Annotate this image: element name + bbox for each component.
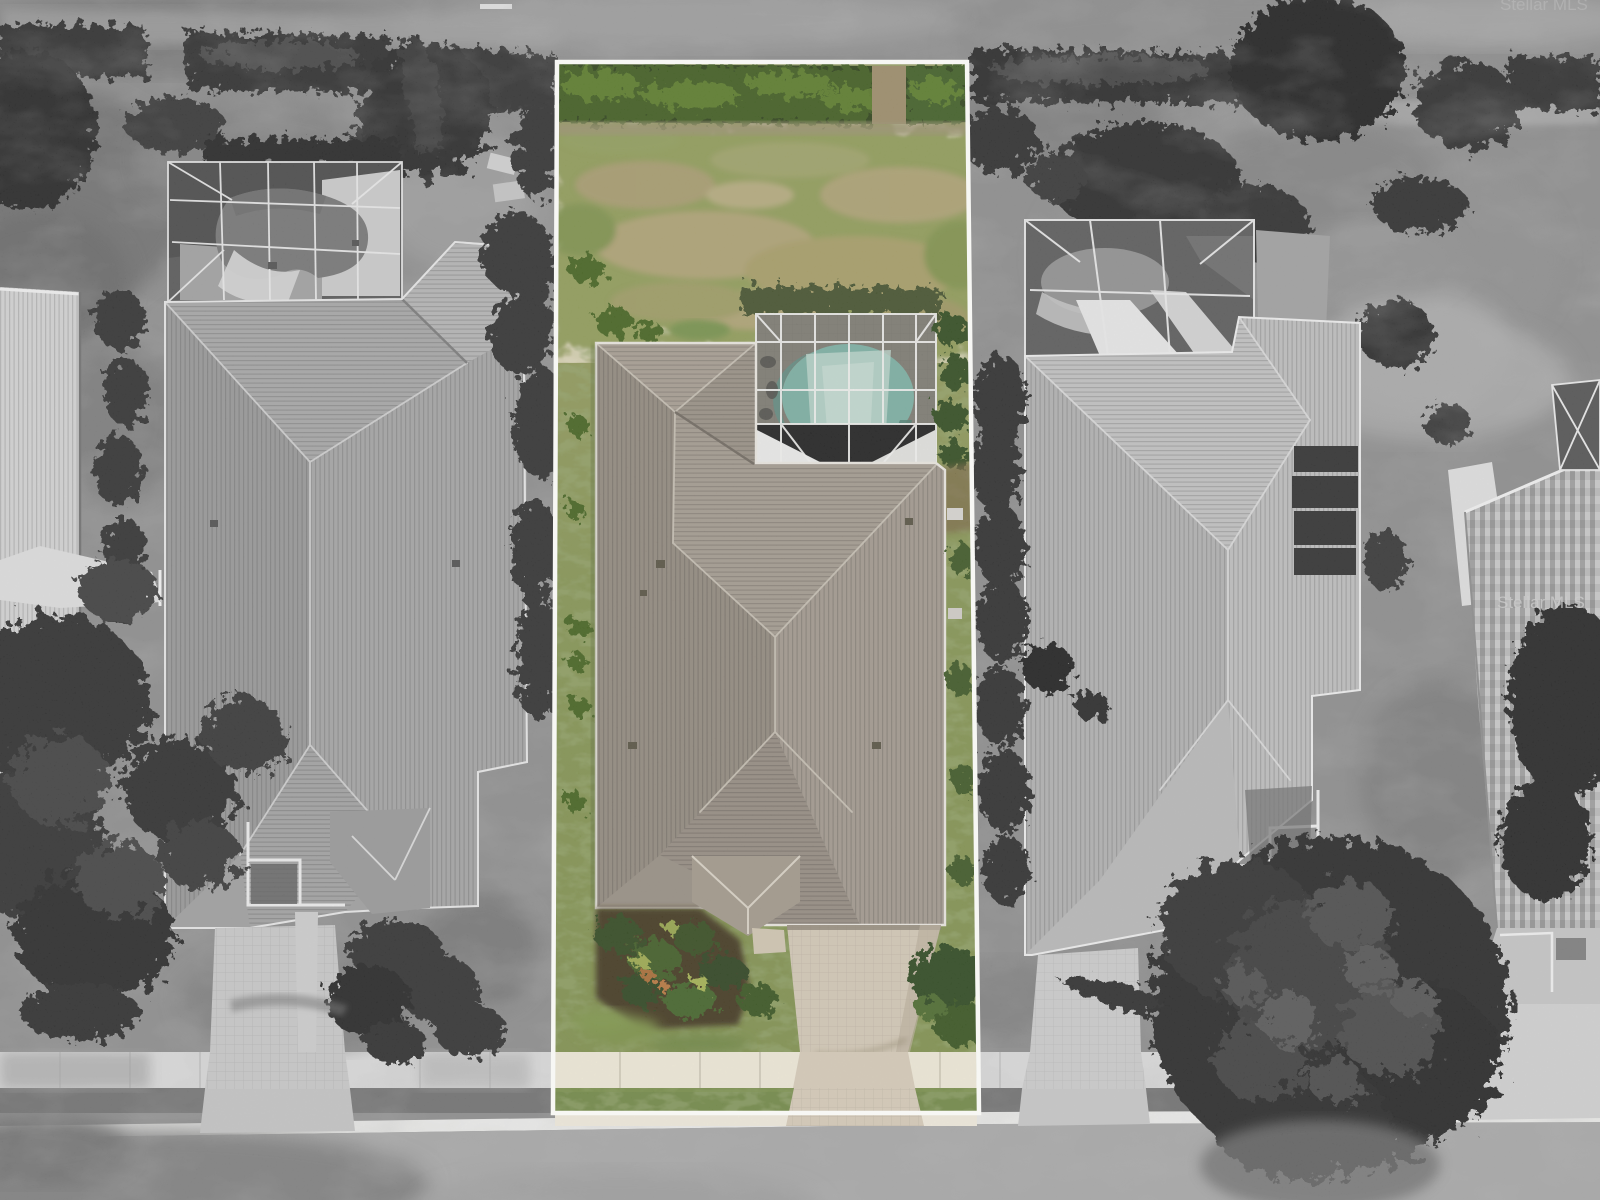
svg-text:Stellar MLS: Stellar MLS [1497, 593, 1585, 612]
svg-text:Stellar MLS: Stellar MLS [1500, 0, 1588, 14]
